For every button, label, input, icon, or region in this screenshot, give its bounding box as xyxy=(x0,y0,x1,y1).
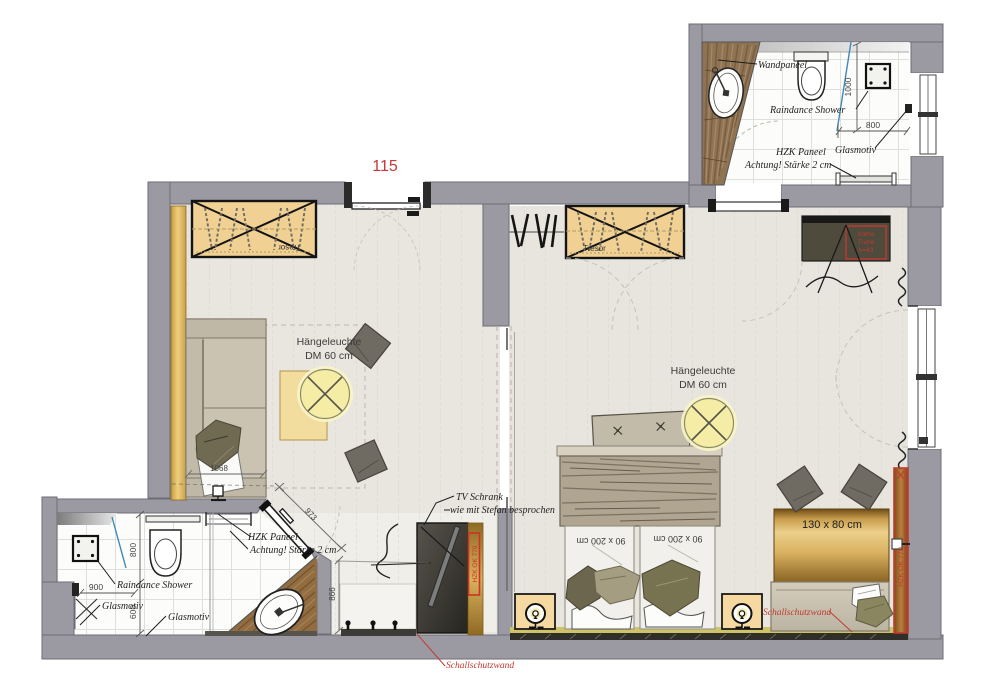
svg-text:Achtung! Stärke 2 cm: Achtung! Stärke 2 cm xyxy=(249,545,336,556)
svg-text:90 x 200 cm: 90 x 200 cm xyxy=(653,534,702,544)
svg-text:1000: 1000 xyxy=(843,77,853,96)
svg-text:Hängeleuchte: Hängeleuchte xyxy=(671,365,736,377)
svg-text:HZK OK 770: HZK OK 770 xyxy=(472,545,479,582)
svg-text:HZK OK 770: HZK OK 770 xyxy=(898,547,905,587)
svg-text:HZK Paneel: HZK Paneel xyxy=(775,147,826,158)
svg-text:Truhe: Truhe xyxy=(858,239,875,246)
svg-text:HZK Paneel: HZK Paneel xyxy=(247,532,298,543)
svg-text:Glasmotiv: Glasmotiv xyxy=(835,145,877,156)
svg-text:DM 60 cm: DM 60 cm xyxy=(679,379,727,391)
svg-text:TV Schrank: TV Schrank xyxy=(456,492,503,503)
svg-text:866: 866 xyxy=(328,587,337,601)
svg-text:wie mit Stefan besprochen: wie mit Stefan besprochen xyxy=(450,505,555,516)
svg-text:Achtung! Stärke 2 cm: Achtung! Stärke 2 cm xyxy=(744,160,831,171)
svg-text:Glasmotiv: Glasmotiv xyxy=(168,612,210,623)
svg-text:Tresor: Tresor xyxy=(583,244,606,253)
svg-text:Klima: Klima xyxy=(858,231,875,238)
svg-text:Raindance Shower: Raindance Shower xyxy=(769,105,845,116)
svg-text:Glasmotiv: Glasmotiv xyxy=(102,601,144,612)
svg-text:130 x 80 cm: 130 x 80 cm xyxy=(802,519,862,531)
svg-text:Raindance Shower: Raindance Shower xyxy=(116,580,192,591)
svg-text:800: 800 xyxy=(866,120,880,130)
svg-text:1068: 1068 xyxy=(210,464,228,473)
svg-text:Schallschutzwand: Schallschutzwand xyxy=(446,661,514,671)
svg-text:DM 60 cm: DM 60 cm xyxy=(305,350,353,362)
svg-text:900: 900 xyxy=(89,582,103,592)
svg-text:Wandpaneel: Wandpaneel xyxy=(758,60,807,71)
svg-text:115: 115 xyxy=(372,158,398,175)
svg-text:90 x 200 cm: 90 x 200 cm xyxy=(576,536,625,546)
svg-text:h=43: h=43 xyxy=(859,247,874,254)
svg-text:Hängeleuchte: Hängeleuchte xyxy=(297,336,362,348)
svg-text:Schallschutzwand: Schallschutzwand xyxy=(763,608,831,618)
svg-text:800: 800 xyxy=(128,543,138,557)
svg-text:Tresor: Tresor xyxy=(278,243,301,252)
